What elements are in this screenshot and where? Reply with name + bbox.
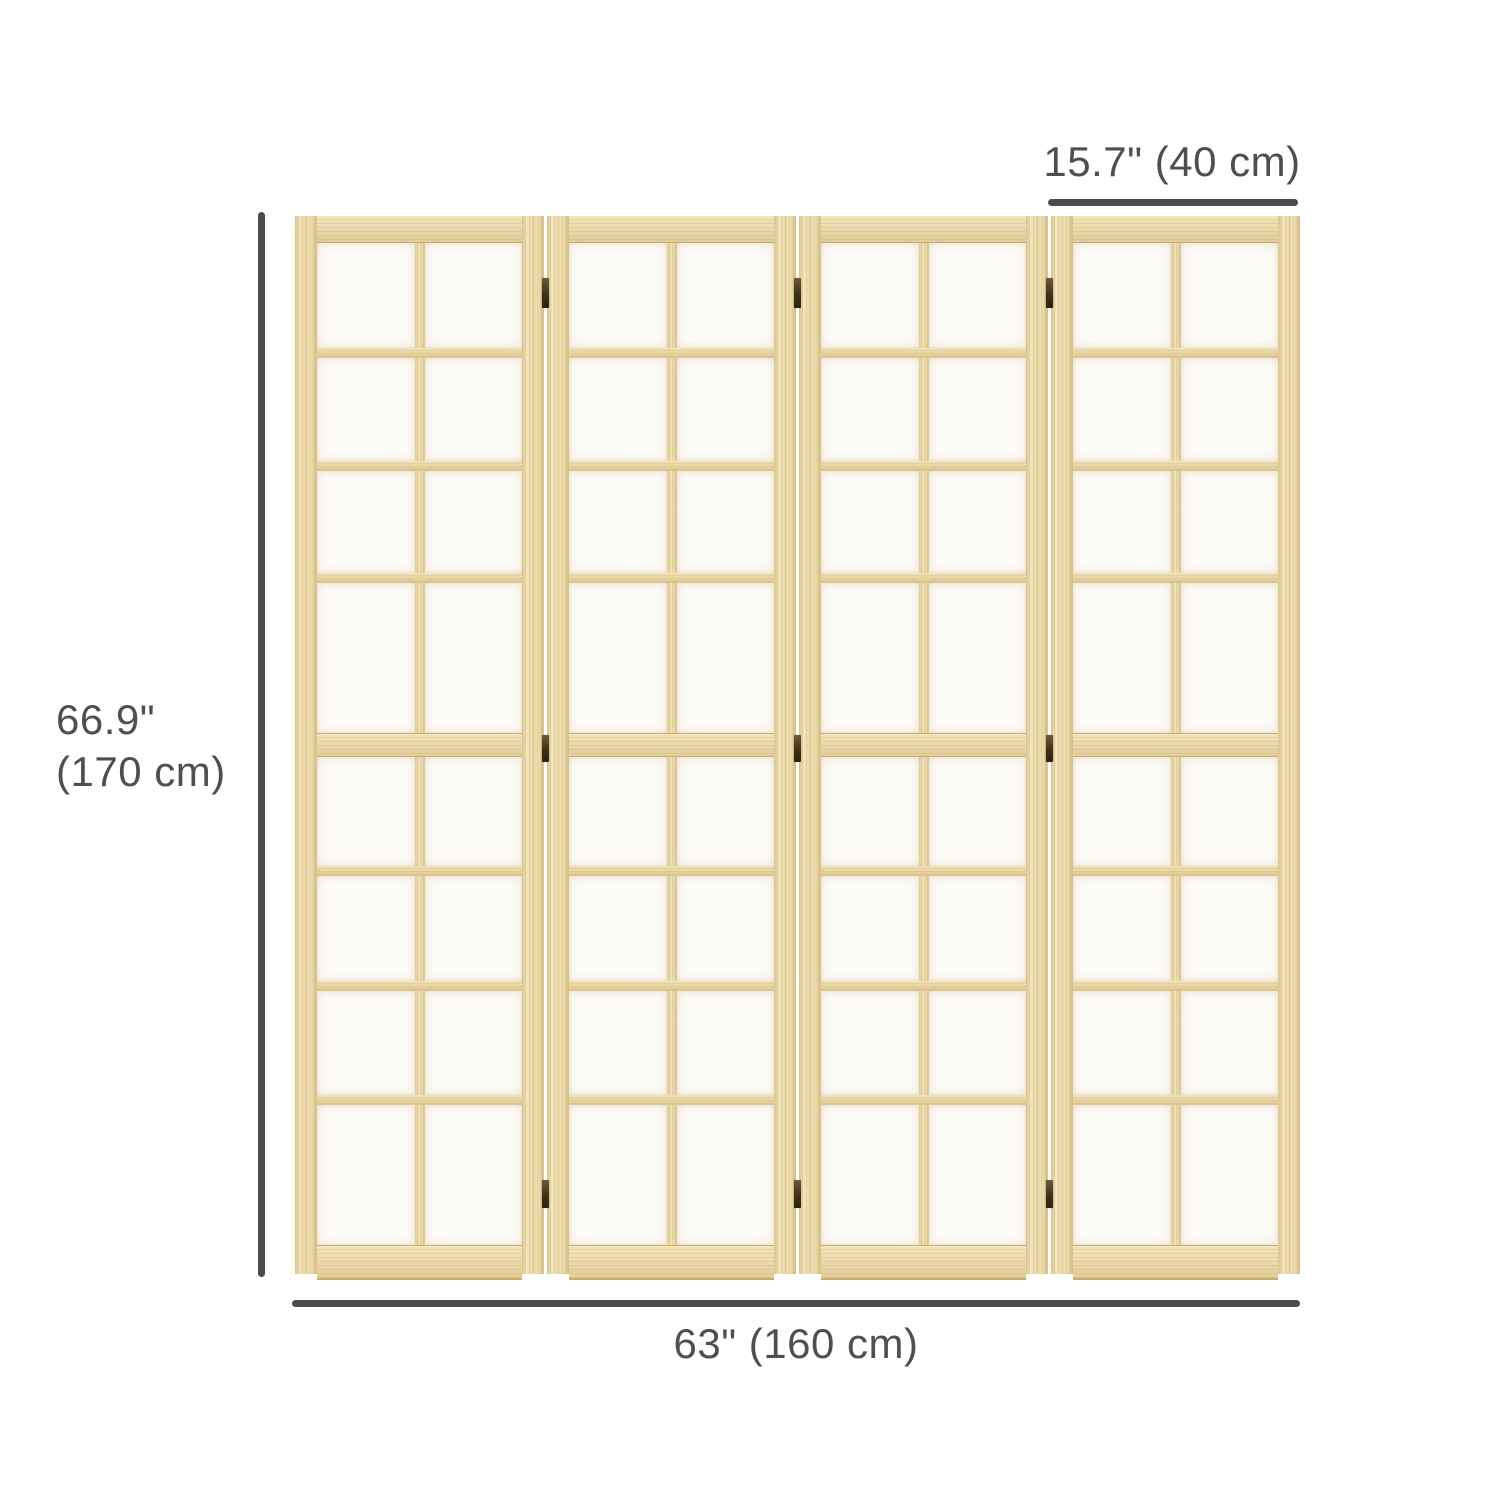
vertical-mullion — [415, 991, 425, 1095]
shoji-paper-cell — [569, 583, 667, 733]
panel-stile-left — [295, 216, 317, 1274]
vertical-mullion — [667, 991, 677, 1095]
panel-core — [317, 216, 522, 1274]
panel-width-dimension-line — [1048, 199, 1298, 206]
panel-core — [821, 216, 1026, 1274]
hinge — [794, 735, 801, 762]
shoji-paper-cell — [425, 1105, 523, 1245]
panel-stile-left — [547, 216, 569, 1274]
shoji-paper-cell — [1073, 991, 1171, 1095]
shoji-paper-cell — [677, 757, 775, 866]
shoji-paper-cell — [929, 583, 1027, 733]
panel-stile-right — [522, 216, 544, 1274]
panel-middle-rail — [1073, 733, 1278, 757]
vertical-mullion — [415, 1105, 425, 1245]
shoji-paper-cell — [1181, 358, 1279, 461]
panel-3-row-1 — [821, 243, 1026, 348]
panel-middle-rail — [317, 733, 522, 757]
shoji-paper-cell — [1073, 358, 1171, 461]
panel-4-row-7 — [1073, 991, 1278, 1095]
panel-1-row-8 — [317, 1105, 522, 1245]
panel-stile-right — [1026, 216, 1048, 1274]
vertical-mullion — [919, 471, 929, 573]
panel-top-rail — [1073, 216, 1278, 243]
hinge — [794, 278, 801, 308]
vertical-mullion — [1171, 583, 1181, 733]
shoji-paper-cell — [677, 583, 775, 733]
panel-3-row-3 — [821, 471, 1026, 573]
shoji-paper-cell — [929, 876, 1027, 981]
panel-bottom-rail — [1073, 1245, 1278, 1280]
shoji-paper-cell — [569, 757, 667, 866]
panel-3-row-5 — [821, 757, 1026, 866]
shoji-paper-cell — [425, 991, 523, 1095]
shoji-paper-cell — [1073, 243, 1171, 348]
screen-panel-2 — [547, 216, 796, 1274]
panel-2-row-4 — [569, 583, 774, 733]
panel-1-row-7 — [317, 991, 522, 1095]
vertical-mullion — [919, 243, 929, 348]
panel-middle-rail — [821, 733, 1026, 757]
panel-2-row-1 — [569, 243, 774, 348]
screen-panel-3 — [799, 216, 1048, 1274]
shoji-paper-cell — [1181, 991, 1279, 1095]
vertical-mullion — [919, 358, 929, 461]
shoji-paper-cell — [821, 991, 919, 1095]
vertical-mullion — [415, 583, 425, 733]
shoji-paper-cell — [1181, 471, 1279, 573]
vertical-mullion — [1171, 243, 1181, 348]
shoji-paper-cell — [317, 757, 415, 866]
folding-screen — [295, 216, 1300, 1274]
shoji-paper-cell — [569, 876, 667, 981]
panel-core — [1073, 216, 1278, 1274]
screen-panel-4 — [1051, 216, 1300, 1274]
panel-top-rail — [317, 216, 522, 243]
vertical-mullion — [667, 757, 677, 866]
panel-bottom-rail — [317, 1245, 522, 1280]
horizontal-muntin — [569, 981, 774, 991]
horizontal-muntin — [1073, 1095, 1278, 1105]
panel-3-row-2 — [821, 358, 1026, 461]
shoji-paper-cell — [425, 358, 523, 461]
shoji-paper-cell — [569, 471, 667, 573]
shoji-paper-cell — [317, 471, 415, 573]
panel-middle-rail — [569, 733, 774, 757]
vertical-mullion — [919, 583, 929, 733]
vertical-mullion — [667, 471, 677, 573]
total-width-dimension-line — [292, 1300, 1300, 1307]
panel-stile-left — [799, 216, 821, 1274]
vertical-mullion — [415, 757, 425, 866]
vertical-mullion — [415, 876, 425, 981]
shoji-paper-cell — [1073, 876, 1171, 981]
hinge — [1046, 735, 1053, 762]
shoji-paper-cell — [569, 991, 667, 1095]
horizontal-muntin — [317, 573, 522, 583]
panel-stile-right — [774, 216, 796, 1274]
vertical-mullion — [1171, 757, 1181, 866]
shoji-paper-cell — [569, 1105, 667, 1245]
shoji-paper-cell — [1181, 876, 1279, 981]
panel-bottom-rail — [569, 1245, 774, 1280]
horizontal-muntin — [821, 981, 1026, 991]
panel-2-row-5 — [569, 757, 774, 866]
vertical-mullion — [415, 358, 425, 461]
vertical-mullion — [919, 991, 929, 1095]
shoji-paper-cell — [1181, 1105, 1279, 1245]
panel-4-row-8 — [1073, 1105, 1278, 1245]
shoji-paper-cell — [677, 471, 775, 573]
hinge — [542, 735, 549, 762]
shoji-paper-cell — [317, 358, 415, 461]
shoji-paper-cell — [317, 1105, 415, 1245]
panel-stile-left — [1051, 216, 1073, 1274]
panel-1-row-3 — [317, 471, 522, 573]
horizontal-muntin — [821, 1095, 1026, 1105]
vertical-mullion — [415, 243, 425, 348]
vertical-mullion — [1171, 991, 1181, 1095]
panel-1-row-1 — [317, 243, 522, 348]
shoji-paper-cell — [425, 876, 523, 981]
horizontal-muntin — [1073, 461, 1278, 471]
panel-1-row-2 — [317, 358, 522, 461]
panel-3-row-4 — [821, 583, 1026, 733]
shoji-paper-cell — [425, 583, 523, 733]
shoji-paper-cell — [425, 243, 523, 348]
horizontal-muntin — [1073, 866, 1278, 876]
shoji-paper-cell — [317, 583, 415, 733]
shoji-paper-cell — [821, 876, 919, 981]
shoji-paper-cell — [1073, 471, 1171, 573]
horizontal-muntin — [821, 573, 1026, 583]
hinge — [794, 1180, 801, 1208]
panel-core — [569, 216, 774, 1274]
panel-bottom-rail — [821, 1245, 1026, 1280]
vertical-mullion — [1171, 876, 1181, 981]
shoji-paper-cell — [929, 471, 1027, 573]
vertical-mullion — [1171, 358, 1181, 461]
panel-4-row-2 — [1073, 358, 1278, 461]
horizontal-muntin — [821, 348, 1026, 358]
vertical-mullion — [667, 583, 677, 733]
shoji-paper-cell — [1073, 583, 1171, 733]
hinge — [1046, 1180, 1053, 1208]
shoji-paper-cell — [677, 876, 775, 981]
shoji-paper-cell — [677, 358, 775, 461]
horizontal-muntin — [569, 1095, 774, 1105]
panel-1-row-6 — [317, 876, 522, 981]
hinge — [542, 1180, 549, 1208]
panel-stile-right — [1278, 216, 1300, 1274]
vertical-mullion — [919, 876, 929, 981]
hinge — [542, 278, 549, 308]
shoji-paper-cell — [821, 583, 919, 733]
panel-4-row-1 — [1073, 243, 1278, 348]
shoji-paper-cell — [677, 1105, 775, 1245]
height-dimension-label-cm: (170 cm) — [56, 746, 226, 798]
shoji-paper-cell — [1181, 583, 1279, 733]
shoji-paper-cell — [929, 757, 1027, 866]
panel-2-row-2 — [569, 358, 774, 461]
hinge — [1046, 278, 1053, 308]
height-dimension-label: 66.9" (170 cm) — [56, 694, 226, 798]
shoji-paper-cell — [425, 471, 523, 573]
panel-4-row-4 — [1073, 583, 1278, 733]
vertical-mullion — [415, 471, 425, 573]
shoji-paper-cell — [929, 243, 1027, 348]
shoji-paper-cell — [929, 358, 1027, 461]
height-dimension-line — [258, 212, 265, 1277]
shoji-paper-cell — [677, 243, 775, 348]
horizontal-muntin — [821, 461, 1026, 471]
horizontal-muntin — [821, 866, 1026, 876]
horizontal-muntin — [1073, 573, 1278, 583]
shoji-paper-cell — [1181, 243, 1279, 348]
panel-2-row-3 — [569, 471, 774, 573]
shoji-paper-cell — [821, 243, 919, 348]
panel-4-row-3 — [1073, 471, 1278, 573]
horizontal-muntin — [317, 1095, 522, 1105]
panel-1-row-4 — [317, 583, 522, 733]
shoji-paper-cell — [821, 358, 919, 461]
horizontal-muntin — [317, 981, 522, 991]
horizontal-muntin — [1073, 348, 1278, 358]
shoji-paper-cell — [1181, 757, 1279, 866]
panel-1-row-5 — [317, 757, 522, 866]
vertical-mullion — [919, 1105, 929, 1245]
vertical-mullion — [667, 358, 677, 461]
shoji-paper-cell — [317, 243, 415, 348]
horizontal-muntin — [569, 573, 774, 583]
vertical-mullion — [919, 757, 929, 866]
shoji-paper-cell — [929, 1105, 1027, 1245]
horizontal-muntin — [569, 461, 774, 471]
shoji-paper-cell — [569, 243, 667, 348]
panel-2-row-6 — [569, 876, 774, 981]
vertical-mullion — [1171, 1105, 1181, 1245]
panel-top-rail — [821, 216, 1026, 243]
horizontal-muntin — [569, 866, 774, 876]
shoji-paper-cell — [317, 876, 415, 981]
total-width-dimension-label: 63" (160 cm) — [292, 1318, 1300, 1370]
panel-2-row-7 — [569, 991, 774, 1095]
horizontal-muntin — [317, 461, 522, 471]
shoji-paper-cell — [929, 991, 1027, 1095]
panel-3-row-6 — [821, 876, 1026, 981]
horizontal-muntin — [1073, 981, 1278, 991]
vertical-mullion — [1171, 471, 1181, 573]
panel-4-row-6 — [1073, 876, 1278, 981]
horizontal-muntin — [317, 348, 522, 358]
vertical-mullion — [667, 1105, 677, 1245]
horizontal-muntin — [317, 866, 522, 876]
shoji-paper-cell — [821, 471, 919, 573]
shoji-paper-cell — [821, 757, 919, 866]
shoji-paper-cell — [425, 757, 523, 866]
shoji-paper-cell — [569, 358, 667, 461]
screen-panel-1 — [295, 216, 544, 1274]
height-dimension-label-inches: 66.9" — [56, 694, 226, 746]
panel-2-row-8 — [569, 1105, 774, 1245]
panel-3-row-8 — [821, 1105, 1026, 1245]
panel-3-row-7 — [821, 991, 1026, 1095]
horizontal-muntin — [569, 348, 774, 358]
vertical-mullion — [667, 876, 677, 981]
panel-width-dimension-label: 15.7" (40 cm) — [1022, 136, 1322, 188]
panel-4-row-5 — [1073, 757, 1278, 866]
shoji-paper-cell — [1073, 757, 1171, 866]
diagram-stage: 15.7" (40 cm) 66.9" (170 cm) 63" (160 cm… — [0, 0, 1500, 1500]
shoji-paper-cell — [677, 991, 775, 1095]
vertical-mullion — [667, 243, 677, 348]
shoji-paper-cell — [821, 1105, 919, 1245]
shoji-paper-cell — [317, 991, 415, 1095]
panel-top-rail — [569, 216, 774, 243]
shoji-paper-cell — [1073, 1105, 1171, 1245]
